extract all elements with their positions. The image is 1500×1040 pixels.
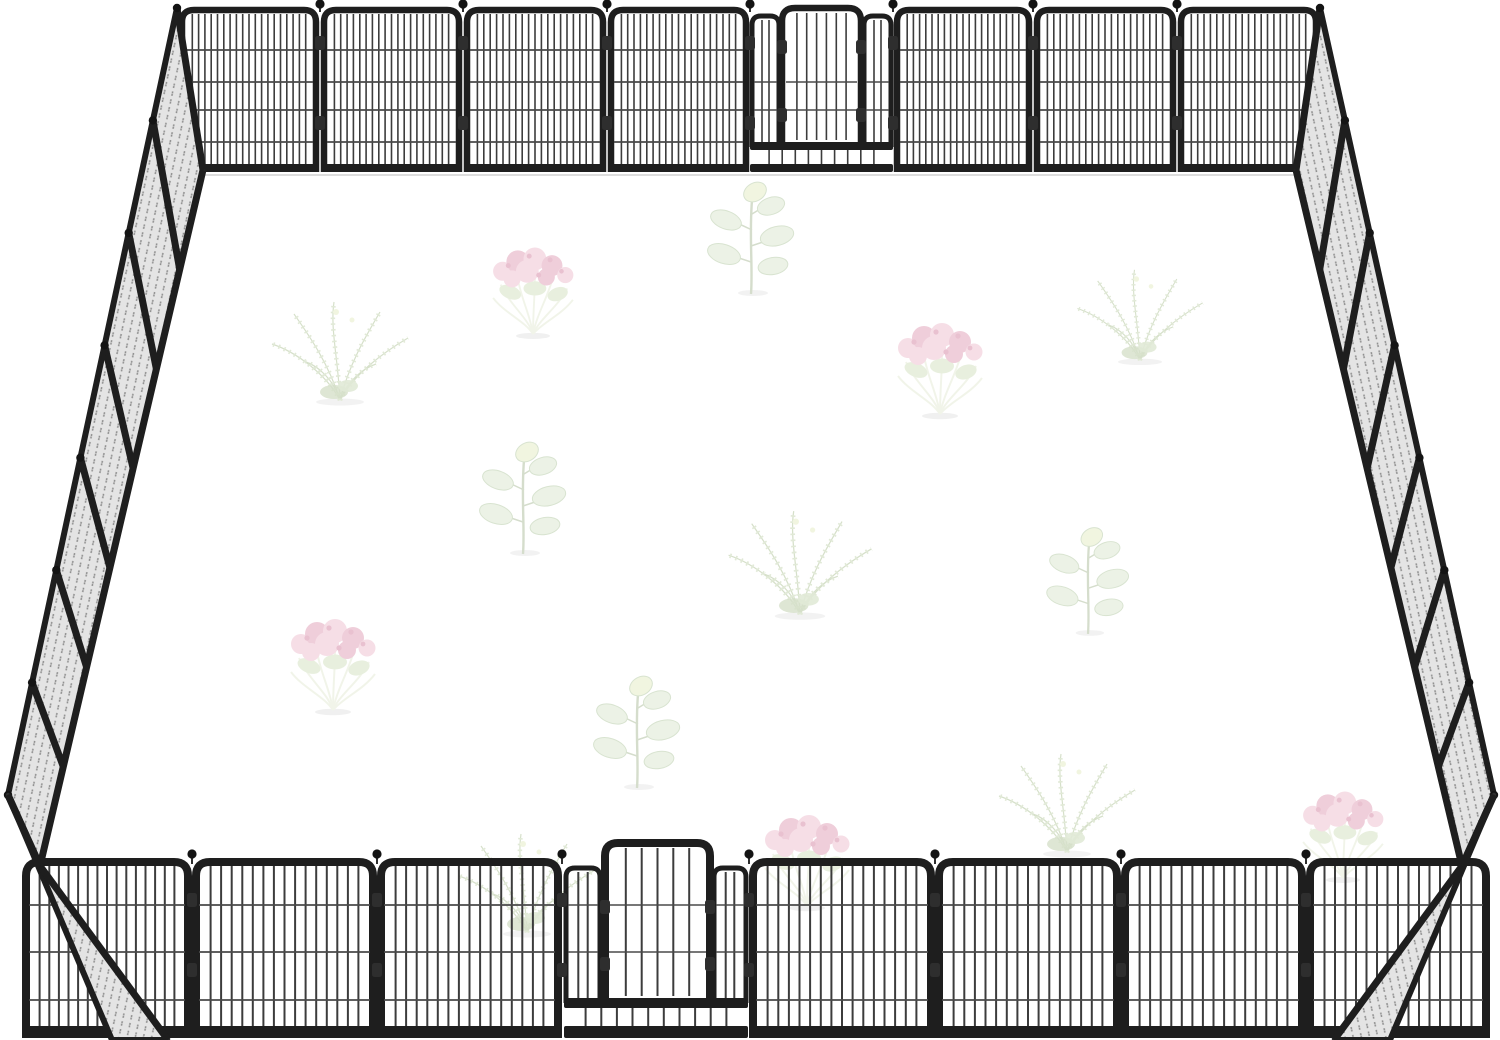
product-photo-pet-playpen <box>0 0 1500 1040</box>
plants <box>272 178 1383 937</box>
left-wall <box>4 4 203 866</box>
front-wall <box>25 843 1487 1038</box>
back-wall <box>178 0 1320 175</box>
right-wall <box>1296 4 1498 866</box>
playpen-illustration <box>0 0 1500 1040</box>
